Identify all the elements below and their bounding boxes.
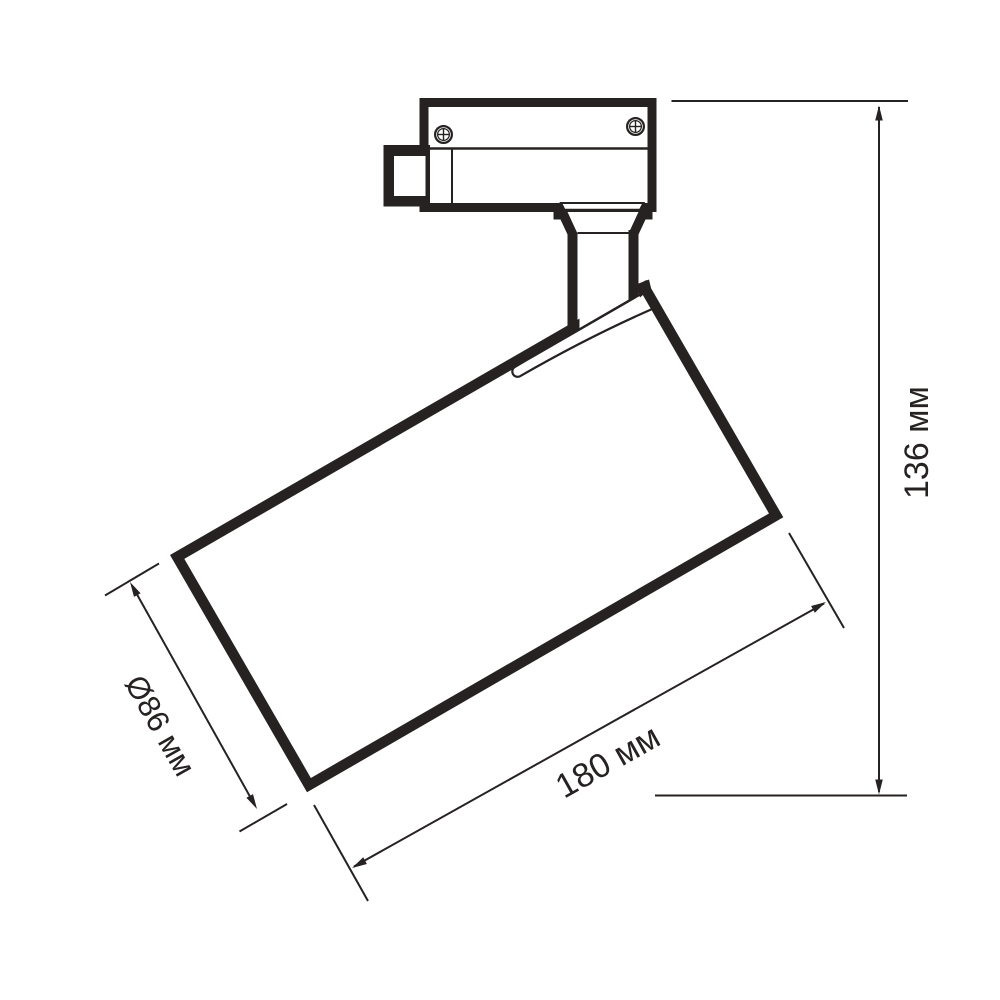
svg-text:136 мм: 136 мм [898, 386, 936, 499]
